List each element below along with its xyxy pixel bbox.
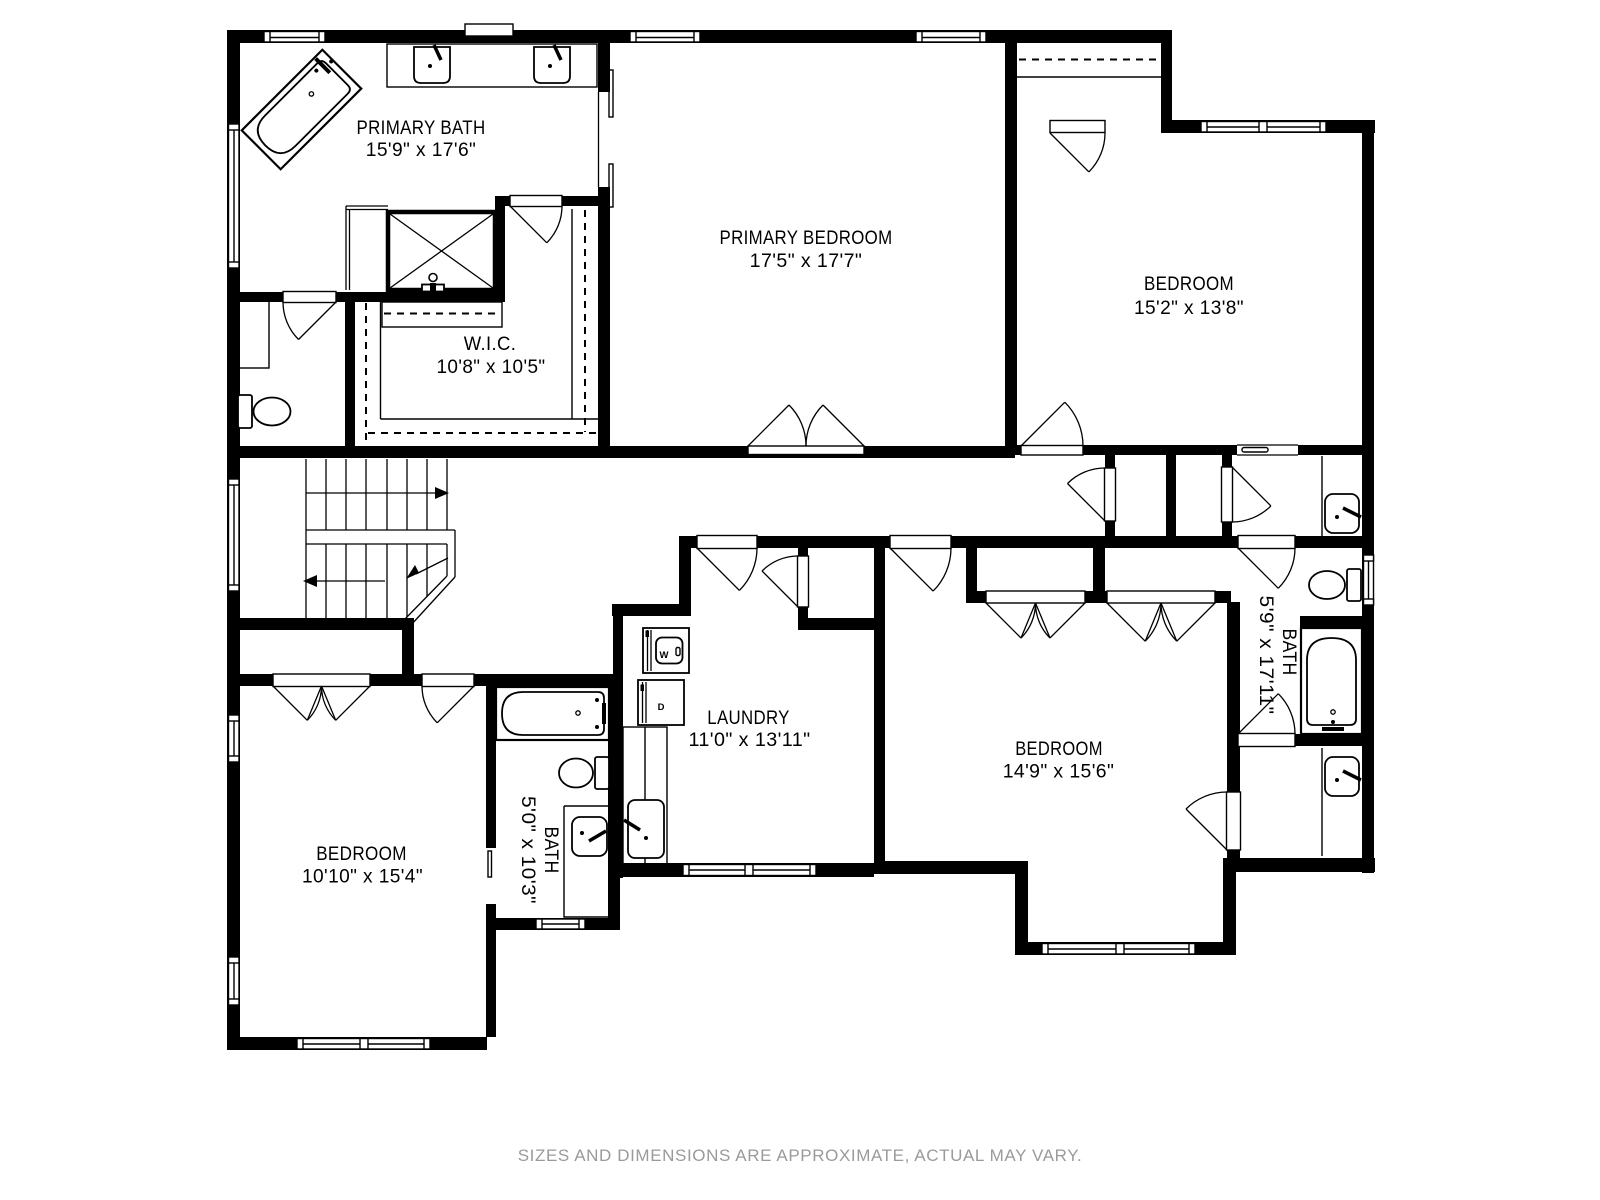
svg-text:10'8" x 10'5": 10'8" x 10'5": [437, 356, 546, 378]
svg-text:14'9" x 15'6": 14'9" x 15'6": [1003, 761, 1115, 783]
svg-text:11'0" x 13'11": 11'0" x 13'11": [689, 729, 811, 751]
svg-text:BEDROOM: BEDROOM: [316, 843, 407, 865]
svg-text:W: W: [660, 650, 669, 661]
svg-text:15'2" x 13'8": 15'2" x 13'8": [1134, 297, 1244, 319]
svg-text:17'5" x 17'7": 17'5" x 17'7": [750, 250, 863, 272]
svg-text:SIZES AND DIMENSIONS ARE APPRO: SIZES AND DIMENSIONS ARE APPROXIMATE, AC…: [518, 1146, 1083, 1165]
svg-text:PRIMARY BATH: PRIMARY BATH: [357, 117, 486, 139]
svg-text:5'0" x 10'3": 5'0" x 10'3": [517, 796, 539, 904]
svg-text:BATH: BATH: [1278, 629, 1300, 676]
svg-text:BEDROOM: BEDROOM: [1015, 738, 1103, 760]
svg-text:BEDROOM: BEDROOM: [1144, 273, 1234, 295]
svg-text:BATH: BATH: [540, 827, 562, 874]
svg-text:D: D: [658, 702, 665, 713]
svg-text:10'10" x 15'4": 10'10" x 15'4": [302, 866, 423, 888]
svg-text:W.I.C.: W.I.C.: [464, 333, 517, 355]
svg-text:LAUNDRY: LAUNDRY: [707, 707, 790, 729]
svg-text:15'9" x 17'6": 15'9" x 17'6": [366, 139, 477, 161]
svg-text:PRIMARY BEDROOM: PRIMARY BEDROOM: [720, 227, 893, 249]
svg-text:5'9" x 17'11": 5'9" x 17'11": [1255, 596, 1277, 715]
